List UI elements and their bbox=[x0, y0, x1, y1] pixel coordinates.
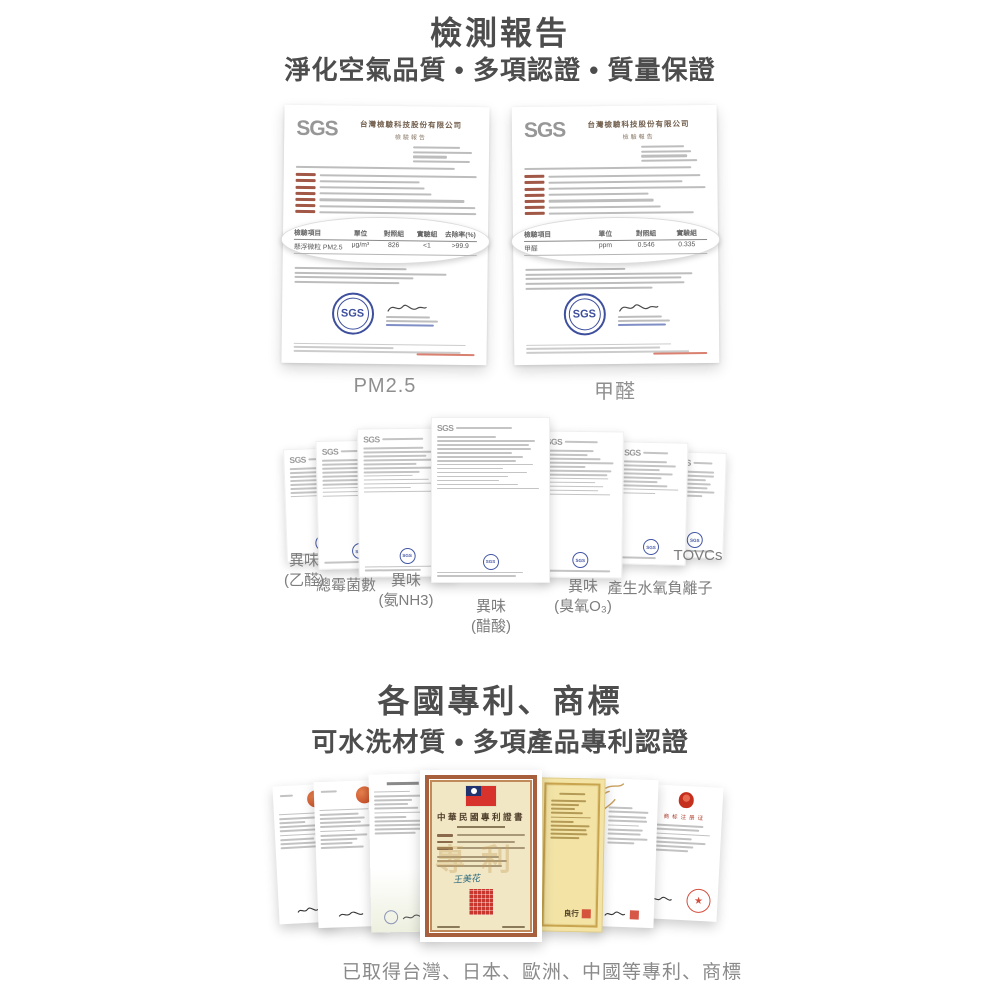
mini-label-negative-ion: 產生水氧負離子 bbox=[607, 579, 712, 599]
star-seal-icon: ★ bbox=[686, 888, 711, 913]
test-report-title: 檢測報告 bbox=[0, 8, 1000, 54]
sgs-report-formaldehyde: SGS 台灣檢驗科技股份有限公司 檢驗報告 檢驗項目單位對照組實驗組甲醛ppm0… bbox=[513, 106, 718, 404]
issuer-name: 台灣檢驗科技股份有限公司 bbox=[344, 118, 477, 131]
result-table: 檢驗項目單位對照組實驗組去除率(%)懸浮微粒 PM2.5μg/m³826<1>9… bbox=[293, 225, 476, 256]
certificate-document: SGS 台灣檢驗科技股份有限公司 檢驗報告 檢驗項目單位對照組實驗組甲醛ppm0… bbox=[511, 105, 719, 365]
signature-icon bbox=[617, 301, 659, 314]
sgs-stamp-icon: SGS bbox=[483, 554, 499, 570]
patent-paragraph bbox=[437, 856, 525, 867]
mini-certificate: SGS SGS bbox=[431, 417, 550, 583]
mini-label-acetic-acid: 異味 (醋酸) bbox=[471, 597, 511, 637]
report-notes bbox=[525, 267, 706, 290]
sgs-logo: SGS bbox=[296, 118, 338, 140]
patent-subtitle: 可水洗材質 • 多項產品專利認證 bbox=[0, 722, 1000, 759]
red-seal-icon bbox=[469, 889, 493, 915]
test-report-subtitle: 淨化空氣品質 • 多項認證 • 質量保證 bbox=[0, 50, 1000, 87]
mini-label-tovcs: TOVCs bbox=[674, 546, 723, 566]
report-fields bbox=[524, 173, 705, 215]
taiwan-patent-certificate: 中華民國專利證書 專利 王美花 bbox=[420, 770, 542, 942]
sgs-stamp-icon: SGS bbox=[643, 539, 659, 555]
issuer-name: 台灣檢驗科技股份有限公司 bbox=[572, 118, 705, 130]
china-emblem-icon bbox=[678, 792, 694, 809]
report-meta-lines bbox=[412, 146, 474, 163]
report-notes bbox=[294, 267, 475, 286]
sgs-logo: SGS bbox=[523, 120, 565, 141]
patent-fields bbox=[437, 834, 525, 850]
mini-certificates-fan: SGS SGS SGS SGS SGS SGS SGS SGS SGS SGS bbox=[270, 410, 730, 638]
report-meta-lines bbox=[641, 145, 703, 162]
sgs-stamp-icon: SGS bbox=[331, 292, 374, 335]
sgs-stamp-icon: SGS bbox=[572, 552, 588, 568]
patent-caption: 已取得台灣、日本、歐洲、中國等專利、商標 bbox=[342, 957, 742, 984]
mini-certificate: SGS SGS bbox=[538, 430, 624, 578]
patent-certificates-fan: 中華民國專利證書 專利 王美花 良行 bbox=[260, 765, 740, 955]
intro-line bbox=[524, 166, 691, 170]
certificate-document: SGS 台灣檢驗科技股份有限公司 檢驗報告 檢驗項目單位對照組實驗組去除率(%)… bbox=[281, 105, 489, 365]
signature-icon bbox=[338, 910, 364, 920]
round-stamp-icon bbox=[384, 910, 398, 924]
red-seal-icon bbox=[629, 910, 638, 919]
doc-type: 檢驗報告 bbox=[572, 131, 705, 141]
signature-block bbox=[617, 301, 669, 327]
trademark-certificate-title: 商标注册证 bbox=[653, 811, 717, 822]
report-fields bbox=[295, 173, 476, 215]
roc-flag-icon bbox=[466, 786, 496, 806]
doc-title-line bbox=[387, 782, 419, 786]
result-highlight: 檢驗項目單位對照組實驗組去除率(%)懸浮微粒 PM2.5μg/m³826<1>9… bbox=[285, 221, 484, 260]
sgs-logo: SGS bbox=[624, 447, 641, 457]
sgs-logo: SGS bbox=[363, 434, 380, 444]
certificate-caption-pm25: PM2.5 bbox=[354, 375, 417, 398]
result-table: 檢驗項目單位對照組實驗組甲醛ppm0.5460.335 bbox=[523, 225, 706, 255]
patent-title: 各國專利、商標 bbox=[0, 676, 1000, 722]
sgs-logo: SGS bbox=[437, 423, 453, 433]
certificate-caption-formaldehyde: 甲醛 bbox=[594, 375, 636, 404]
sgs-report-pair: SGS 台灣檢驗科技股份有限公司 檢驗報告 檢驗項目單位對照組實驗組去除率(%)… bbox=[0, 106, 1000, 404]
mini-label-ozone: 異味 (臭氧O₃) bbox=[554, 577, 612, 617]
sgs-logo: SGS bbox=[289, 455, 306, 466]
minister-signature: 王美花 bbox=[453, 871, 481, 886]
sgs-report-pm25: SGS 台灣檢驗科技股份有限公司 檢驗報告 檢驗項目單位對照組實驗組去除率(%)… bbox=[283, 106, 488, 398]
mini-label-ammonia: 異味 (氨NH3) bbox=[379, 571, 434, 611]
signature-block bbox=[385, 301, 437, 327]
signature-icon bbox=[297, 905, 319, 915]
signature-icon bbox=[385, 301, 427, 315]
sgs-stamp-icon: SGS bbox=[399, 548, 415, 564]
certificate-number-line bbox=[457, 826, 505, 828]
intro-line bbox=[295, 166, 454, 170]
product-certification-page: 檢測報告 淨化空氣品質 • 多項認證 • 質量保證 SGS 台灣檢驗科技股份有限… bbox=[0, 0, 1000, 1000]
sgs-stamp-icon: SGS bbox=[563, 293, 605, 335]
doc-type: 檢驗報告 bbox=[344, 131, 477, 142]
sgs-logo: SGS bbox=[322, 446, 339, 456]
patent-certificate-title: 中華民國專利證書 bbox=[437, 811, 525, 823]
mini-label-mold: 總霉菌數 bbox=[316, 576, 376, 596]
signature-icon bbox=[603, 909, 625, 919]
japan-gold-patent-certificate: 良行 bbox=[536, 777, 605, 932]
signature-text: 良行 bbox=[564, 908, 579, 919]
red-seal-icon bbox=[582, 909, 591, 918]
result-highlight: 檢驗項目單位對照組實驗組甲醛ppm0.5460.335 bbox=[515, 221, 714, 259]
